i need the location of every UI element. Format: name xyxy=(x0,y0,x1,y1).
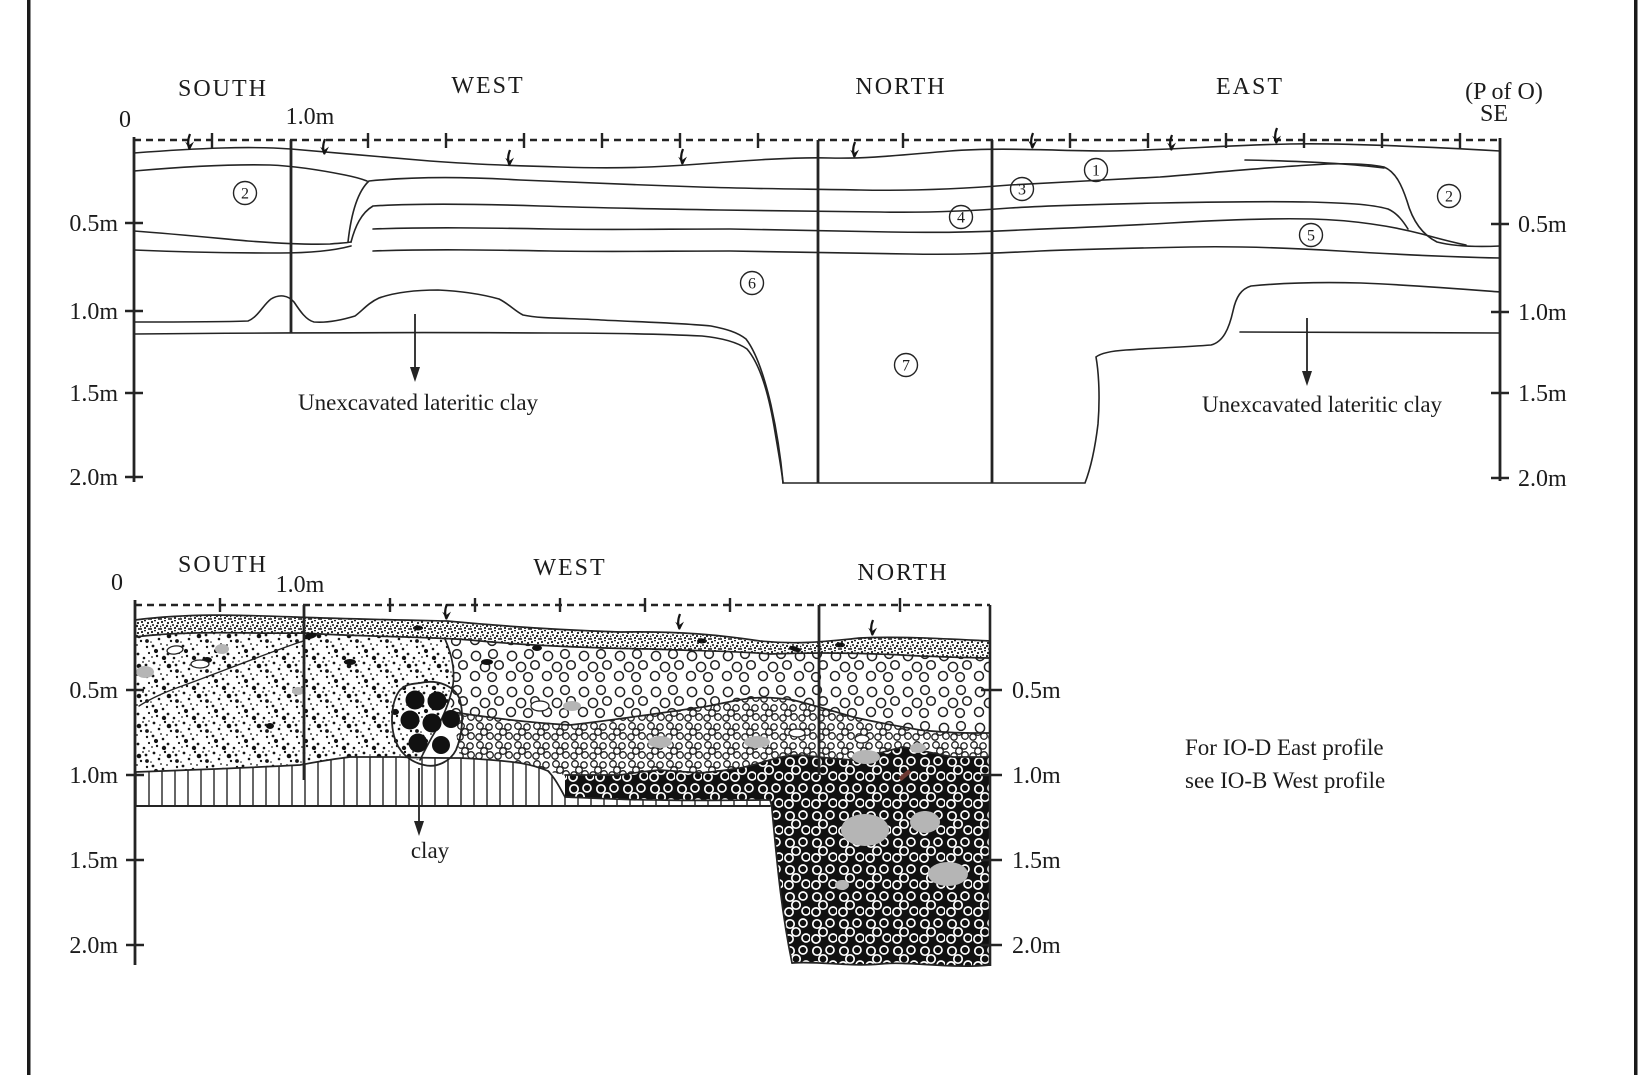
plant-mark-icon xyxy=(505,150,514,166)
cross-reference-note: For IO-D East profile see IO-B West prof… xyxy=(1185,735,1385,793)
down-arrow-icon xyxy=(1302,318,1312,386)
depth-label: 1.0m xyxy=(69,763,118,789)
upper-section-dividers xyxy=(291,140,992,483)
layer-number-text: 1 xyxy=(1092,163,1100,180)
plant-mark-icon xyxy=(868,620,877,636)
lower-annotation-clay: clay xyxy=(411,838,450,863)
depth-label: 1.5m xyxy=(1518,381,1567,407)
depth-label: 1.5m xyxy=(69,848,118,874)
plant-mark-icon xyxy=(678,149,687,165)
depth-label: 2.0m xyxy=(1012,933,1061,959)
layer-number-text: 5 xyxy=(1307,228,1315,245)
layer-number-text: 2 xyxy=(241,186,249,203)
lower-wall-label-west: WEST xyxy=(533,555,606,581)
layer-number-4: 4 xyxy=(950,206,973,229)
figure-page: SOUTH WEST NORTH EAST (P of O) SE 0 1.0m… xyxy=(0,0,1648,1075)
plant-mark-icon xyxy=(675,614,684,630)
upper-annotation-unexcavated-right: Unexcavated lateritic clay xyxy=(1202,392,1443,417)
lower-profile: SOUTH WEST NORTH 0 1.0m 0.5m 1.0m 1.5m 2… xyxy=(69,552,1385,966)
layer-number-text: 3 xyxy=(1018,182,1026,199)
layer-number-5: 5 xyxy=(1300,224,1323,247)
upper-origin-corner-label: SE xyxy=(1480,101,1508,127)
upper-zero-tick-label: 0 xyxy=(119,107,131,133)
upper-annotation-unexcavated-left: Unexcavated lateritic clay xyxy=(298,390,539,415)
lower-wall-label-south: SOUTH xyxy=(178,552,268,578)
upper-right-depth-labels: 0.5m 1.0m 1.5m 2.0m xyxy=(1518,212,1567,492)
upper-profile: SOUTH WEST NORTH EAST (P of O) SE 0 1.0m… xyxy=(69,73,1567,492)
upper-left-scale-axis xyxy=(125,137,143,482)
layer-number-text: 7 xyxy=(902,358,910,375)
layer-number-3: 3 xyxy=(1011,178,1034,201)
layer-number-1: 1 xyxy=(1085,159,1108,182)
note-line-2: see IO-B West profile xyxy=(1185,768,1385,793)
lower-zero-tick-label: 0 xyxy=(111,570,123,596)
upper-right-scale-axis xyxy=(1491,138,1509,481)
depth-label: 0.5m xyxy=(1518,212,1567,238)
depth-label: 1.0m xyxy=(69,299,118,325)
depth-label: 1.0m xyxy=(1518,300,1567,326)
depth-label: 2.0m xyxy=(69,933,118,959)
lower-right-depth-labels: 0.5m 1.0m 1.5m 2.0m xyxy=(1012,678,1061,959)
depth-label: 0.5m xyxy=(69,678,118,704)
lower-one-meter-label: 1.0m xyxy=(276,572,325,598)
depth-label: 2.0m xyxy=(1518,466,1567,492)
upper-wall-label-north: NORTH xyxy=(855,74,946,100)
layer-number-text: 4 xyxy=(957,210,965,227)
lower-left-depth-labels: 0.5m 1.0m 1.5m 2.0m xyxy=(69,678,118,959)
upper-surface-marks xyxy=(185,128,1281,166)
frame-border-left xyxy=(27,0,31,1075)
layer-number-2-right: 2 xyxy=(1438,185,1461,208)
depth-label: 2.0m xyxy=(69,465,118,491)
depth-label: 1.5m xyxy=(1012,848,1061,874)
plant-mark-icon xyxy=(185,134,194,150)
upper-left-depth-labels: 0.5m 1.0m 1.5m 2.0m xyxy=(69,211,118,491)
note-line-1: For IO-D East profile xyxy=(1185,735,1384,760)
plant-mark-icon xyxy=(1272,128,1281,144)
layer-number-7: 7 xyxy=(895,354,918,377)
depth-label: 0.5m xyxy=(1012,678,1061,704)
layer-number-2-left: 2 xyxy=(234,182,257,205)
layer-number-text: 2 xyxy=(1445,189,1453,206)
lower-wall-label-north: NORTH xyxy=(857,560,948,586)
plant-mark-icon xyxy=(850,142,859,158)
lower-layer-fills xyxy=(135,615,990,966)
layer-number-6: 6 xyxy=(741,272,764,295)
depth-label: 1.0m xyxy=(1012,763,1061,789)
plant-mark-icon xyxy=(442,604,451,620)
upper-one-meter-label: 1.0m xyxy=(286,104,335,130)
layer-number-text: 6 xyxy=(748,276,756,293)
upper-wall-label-south: SOUTH xyxy=(178,76,268,102)
depth-label: 1.5m xyxy=(69,381,118,407)
frame-border-right xyxy=(1634,0,1638,1075)
upper-wall-label-west: WEST xyxy=(451,73,524,99)
down-arrow-icon xyxy=(410,314,420,382)
upper-wall-label-east: EAST xyxy=(1216,74,1284,100)
lower-datum-line xyxy=(135,598,990,612)
depth-label: 0.5m xyxy=(69,211,118,237)
